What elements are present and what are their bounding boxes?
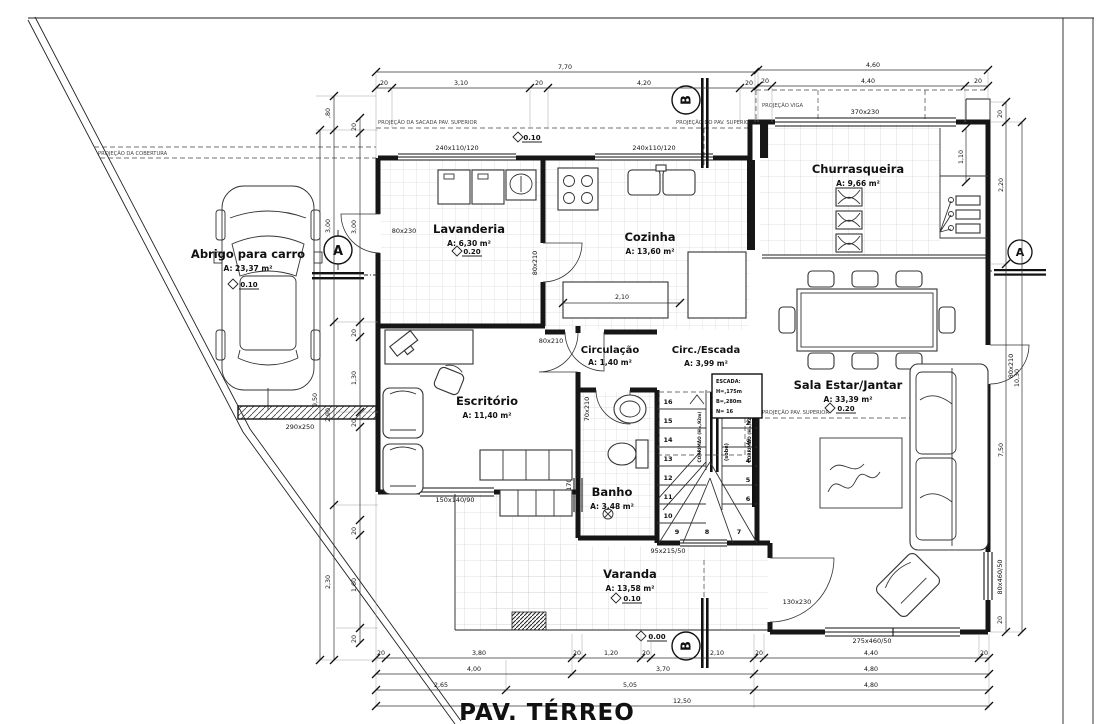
- svg-text:1,60: 1,60: [351, 578, 358, 592]
- svg-text:4,80: 4,80: [864, 682, 878, 689]
- room-area-abrigo: A: 23,37 m²: [224, 264, 273, 273]
- projection-label-cobertura: PROJEÇÃO DA COBERTURA: [98, 150, 168, 157]
- svg-text:A: A: [1016, 246, 1025, 259]
- stair-box-n: N= 16: [716, 409, 734, 415]
- bbq-stools: [836, 188, 862, 252]
- svg-text:20: 20: [761, 78, 769, 85]
- window-label-240-2: 240x110/120: [632, 144, 675, 152]
- svg-text:5,05: 5,05: [623, 682, 637, 689]
- svg-text:20: 20: [351, 123, 358, 131]
- window-label-240-1: 240x110/120: [435, 144, 478, 152]
- doormat: [512, 612, 546, 630]
- svg-text:2,30: 2,30: [325, 575, 332, 589]
- svg-text:3,70: 3,70: [656, 666, 670, 673]
- svg-text:3,10: 3,10: [454, 80, 468, 87]
- section-marker-a-right: A: [988, 240, 1046, 276]
- svg-text:2,65: 2,65: [434, 682, 448, 689]
- door-label-80x230: 80x230: [392, 227, 417, 235]
- door-label-80x210-lav: 80x210: [531, 251, 539, 276]
- step-12: 12: [663, 474, 672, 482]
- projection-label-sacada: PROJEÇÃO DA SACADA PAV. SUPERIOR: [378, 119, 478, 126]
- door-label-70x210: 70x210: [583, 397, 591, 422]
- room-label-circulacao: Circulação: [581, 345, 640, 356]
- door-label-130x230: 130x230: [783, 598, 812, 606]
- level-sala: 0.20: [825, 403, 856, 413]
- stair-box-b: B=,280m: [716, 399, 742, 405]
- sobe-label: (sobe): [724, 443, 730, 461]
- svg-text:7,50: 7,50: [998, 443, 1005, 457]
- stair-info-box: ESCADA: H=,175m B=,280m N= 16: [712, 374, 762, 418]
- dim-top-total: 7,70: [558, 64, 572, 71]
- rug: [820, 438, 902, 508]
- room-label-sala: Sala Estar/Jantar: [794, 378, 903, 392]
- svg-text:20: 20: [573, 650, 581, 657]
- room-area-cozinha: A: 13,60 m²: [626, 247, 675, 256]
- svg-text:20: 20: [745, 80, 753, 87]
- step-9: 9: [675, 528, 680, 536]
- page-title: PAV. TÉRREO: [459, 698, 635, 724]
- stair-box-title: ESCADA:: [716, 379, 741, 385]
- svg-text:0.10: 0.10: [240, 281, 257, 289]
- floor-plan-page: PROJEÇÃO DA SACADA PAV. SUPERIOR PROJEÇÃ…: [0, 0, 1098, 724]
- gate-size-label: 290x250: [286, 423, 315, 431]
- svg-text:2,10: 2,10: [710, 650, 724, 657]
- svg-text:20: 20: [535, 80, 543, 87]
- step-15: 15: [663, 417, 673, 425]
- room-label-varanda: Varanda: [603, 567, 657, 581]
- handrail-label-1: CORRIMÃO (H=,92m): [696, 411, 703, 462]
- step-7: 7: [737, 528, 742, 536]
- svg-text:4,20: 4,20: [637, 80, 651, 87]
- window-label-275: 275x460/50: [852, 637, 891, 645]
- svg-text:1,10: 1,10: [958, 150, 965, 164]
- svg-text:1,30: 1,30: [351, 371, 358, 385]
- svg-text:20: 20: [380, 80, 388, 87]
- room-label-escritorio: Escritório: [456, 394, 518, 408]
- svg-text:20: 20: [351, 635, 358, 643]
- svg-text:2,90: 2,90: [325, 408, 332, 422]
- handrail-label-2: CORRIMÃO (H=,92m): [746, 411, 753, 462]
- step-6: 6: [746, 495, 751, 503]
- svg-text:20: 20: [351, 419, 358, 427]
- svg-text:4,40: 4,40: [864, 650, 878, 657]
- laundry-appliances: [438, 170, 536, 204]
- svg-text:9,50: 9,50: [312, 393, 319, 407]
- svg-text:20: 20: [377, 650, 385, 657]
- room-area-sala: A: 33,39 m²: [824, 395, 873, 404]
- projection-label-viga: PROJEÇÃO VIGA: [762, 102, 804, 109]
- svg-text:0.10: 0.10: [623, 595, 640, 603]
- projection-label-pav-superior-2: PROJEÇÃO PAV. SUPERIOR: [762, 409, 829, 416]
- room-area-varanda: A: 13,58 m²: [606, 584, 655, 593]
- svg-text:20: 20: [351, 329, 358, 337]
- dim-topright-total: 4,60: [866, 62, 880, 69]
- svg-text:4,00: 4,00: [467, 666, 481, 673]
- svg-text:,80: ,80: [325, 108, 332, 118]
- step-5: 5: [746, 476, 751, 484]
- window-label-370: 370x230: [851, 108, 880, 116]
- room-label-cozinha: Cozinha: [624, 230, 675, 244]
- stair-box-h: H=,175m: [716, 389, 742, 395]
- svg-text:1,20: 1,20: [604, 650, 618, 657]
- svg-text:B: B: [680, 95, 695, 105]
- svg-text:0.20: 0.20: [463, 248, 480, 256]
- svg-text:20: 20: [642, 650, 650, 657]
- floor-plan-drawing: PROJEÇÃO DA SACADA PAV. SUPERIOR PROJEÇÃ…: [0, 0, 1098, 724]
- svg-text:4,80: 4,80: [864, 666, 878, 673]
- step-11: 11: [663, 493, 673, 501]
- svg-text:20: 20: [980, 650, 988, 657]
- room-label-churrasqueira: Churrasqueira: [812, 162, 904, 176]
- window-label-95: 95x215/50: [651, 547, 686, 555]
- step-13: 13: [663, 455, 672, 463]
- svg-text:A: A: [333, 244, 343, 259]
- step-10: 10: [663, 512, 673, 520]
- step-16: 16: [663, 398, 673, 406]
- svg-text:3,00: 3,00: [351, 220, 358, 234]
- level-sacada: 0.10: [513, 132, 542, 142]
- svg-text:3,80: 3,80: [472, 650, 486, 657]
- room-area-circulacao: A: 1,40 m²: [588, 358, 632, 367]
- dining-set: [779, 271, 955, 369]
- car-top-view: [214, 186, 322, 410]
- room-area-escritorio: A: 11,40 m²: [463, 411, 512, 420]
- svg-text:0.20: 0.20: [837, 405, 854, 413]
- step-14: 14: [663, 436, 673, 444]
- svg-text:20: 20: [351, 527, 358, 535]
- dim-kitchen-counter: 2,10: [615, 294, 629, 301]
- level-abrigo: 0.10: [228, 279, 259, 289]
- room-label-circ-escada: Circ./Escada: [672, 345, 740, 356]
- room-area-circ-escada: A: 3,99 m²: [684, 359, 728, 368]
- door-label-80x210-circ: 80x210: [539, 337, 564, 345]
- room-label-lavanderia: Lavanderia: [433, 222, 505, 236]
- room-label-banho: Banho: [592, 485, 633, 499]
- dim-bottom-total: 12,50: [673, 698, 691, 705]
- svg-text:4,40: 4,40: [861, 78, 875, 85]
- svg-text:B: B: [680, 641, 695, 651]
- svg-text:0.10: 0.10: [523, 134, 540, 142]
- room-label-abrigo: Abrigo para carro: [191, 247, 305, 261]
- window-label-80x460: 80x460/50: [996, 560, 1004, 595]
- svg-text:2,20: 2,20: [998, 178, 1005, 192]
- level-terreo: 0.00: [636, 631, 667, 641]
- projection-label-pav-superior: PROJEÇÃO DO PAV. SUPERIOR: [676, 119, 753, 126]
- armchair-rotated: [874, 551, 942, 619]
- svg-text:20: 20: [974, 78, 982, 85]
- room-area-churrasqueira: A: 9,66 m²: [836, 179, 880, 188]
- svg-text:20: 20: [997, 110, 1004, 118]
- room-area-lavanderia: A: 6,30 m²: [447, 239, 491, 248]
- step-8: 8: [705, 528, 710, 536]
- svg-text:10,30: 10,30: [1014, 369, 1021, 387]
- window-label-150: 150x140/90: [435, 496, 474, 504]
- stairs: 16 15 14 13 12 11 10 1 2 3 4 5 6 7 8 9 C…: [657, 374, 762, 543]
- room-area-banho: A: 3,48 m²: [590, 502, 634, 511]
- svg-text:20: 20: [997, 616, 1004, 624]
- svg-text:3,00: 3,00: [325, 219, 332, 233]
- svg-text:20: 20: [755, 650, 763, 657]
